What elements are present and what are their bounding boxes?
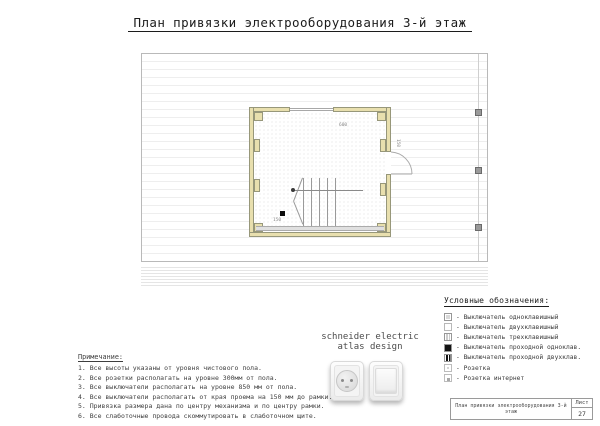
roof-marker [475, 224, 482, 231]
socket-internet-icon [444, 374, 452, 382]
switch-plate [373, 365, 399, 397]
note-line: 2. Все розетки располагать на уровне 300… [78, 374, 328, 384]
legend-item-label: - Выключатель трехклавишный [456, 334, 558, 341]
note-line: 5. Привязка размера дана по центру механ… [78, 402, 328, 412]
wall-right-lower [386, 174, 391, 237]
legend-item-label: - Розетка [456, 365, 490, 372]
title-block-sheet-column: Лист 27 [571, 399, 592, 419]
socket-photo [330, 361, 364, 401]
switch-pass-single-icon [444, 344, 452, 352]
wall-bottom [249, 232, 391, 237]
switch-double-icon [444, 323, 452, 331]
legend-item: - Розетка интернет [444, 373, 596, 383]
sheet-number: 27 [572, 408, 592, 419]
wall-right-upper [386, 107, 391, 152]
ceiling-grid-dots [254, 112, 386, 227]
window [290, 110, 333, 111]
stair-line [319, 178, 320, 226]
stair-line [311, 178, 312, 226]
handrail-line [293, 190, 363, 191]
landing-strip [256, 226, 384, 231]
wall-left [249, 107, 254, 237]
note-line: 4. Все выключатели располагать от края п… [78, 393, 328, 403]
note-line: 1. Все высоты указаны от уровня чистовог… [78, 364, 328, 374]
dimension-label: 600 [339, 124, 347, 129]
legend-item-label: - Выключатель проходной двухклав. [456, 354, 581, 361]
title-block-doc-title: План привязки электрооборудования 3-й эт… [451, 399, 571, 419]
sheet-label: Лист [572, 399, 592, 408]
roof-marker [475, 167, 482, 174]
legend-item: - Розетка [444, 363, 596, 373]
pilaster [254, 179, 260, 192]
pilaster [380, 139, 386, 152]
switch-triple-icon [444, 333, 452, 341]
switch-pass-double-icon [444, 354, 452, 362]
legend-item: - Выключатель двухклавишный [444, 322, 596, 332]
notes-title: Примечание: [78, 353, 123, 362]
note-line: 6. Все слаботочные провода скоммутироват… [78, 412, 328, 422]
stair-line [303, 178, 304, 226]
page-title-text: План привязки электрооборудования 3-й эт… [128, 15, 473, 32]
switch-rocker [375, 368, 397, 394]
handrail-post [291, 188, 295, 192]
stair-line [327, 178, 328, 226]
socket-icon [444, 364, 452, 372]
legend-item-label: - Выключатель одноклавишный [456, 314, 558, 321]
notes: Примечание: 1. Все высоты указаны от уро… [78, 344, 328, 422]
brand-line2: atlas design [318, 343, 422, 353]
socket-ground-slot [345, 386, 349, 388]
pass-switch-marker [280, 211, 285, 216]
title-block: План привязки электрооборудования 3-й эт… [450, 398, 593, 420]
brand-caption: schneider electric atlas design [318, 333, 422, 353]
pilaster [380, 183, 386, 196]
legend-title: Условные обозначения: [444, 296, 549, 307]
window [290, 108, 333, 109]
socket-recess [336, 370, 358, 392]
legend-item: - Выключатель одноклавишный [444, 312, 596, 322]
switch-single-icon [444, 313, 452, 321]
legend-item: - Выключатель проходной двухклав. [444, 353, 596, 363]
socket-hole [350, 379, 353, 382]
note-line: 3. Все выключатели располагать на уровне… [78, 383, 328, 393]
dimension-label: 150 [395, 139, 400, 147]
legend-item-label: - Выключатель проходной одноклав. [456, 344, 581, 351]
door-arc [391, 151, 415, 177]
legend-item: - Выключатель проходной одноклав. [444, 343, 596, 353]
roof-marker [475, 109, 482, 116]
legend-item-label: - Выключатель двухклавишный [456, 324, 558, 331]
legend-item: - Выключатель трехклавишный [444, 332, 596, 342]
switch-photo [369, 361, 403, 401]
roof-siding-band [141, 267, 488, 288]
legend-item-label: - Розетка интернет [456, 375, 524, 382]
pilaster [254, 112, 263, 121]
drawing-sheet: План привязки электрооборудования 3-й эт… [0, 0, 600, 426]
pilaster [254, 139, 260, 152]
socket-hole [341, 379, 344, 382]
socket-plate [334, 365, 360, 397]
room-plan: 150 600 150 [249, 107, 391, 237]
page-title: План привязки электрооборудования 3-й эт… [0, 12, 600, 32]
dimension-label: 150 [273, 219, 281, 224]
legend: Условные обозначения: - Выключатель одно… [444, 288, 596, 383]
pilaster [377, 112, 386, 121]
stair-line [335, 178, 336, 226]
